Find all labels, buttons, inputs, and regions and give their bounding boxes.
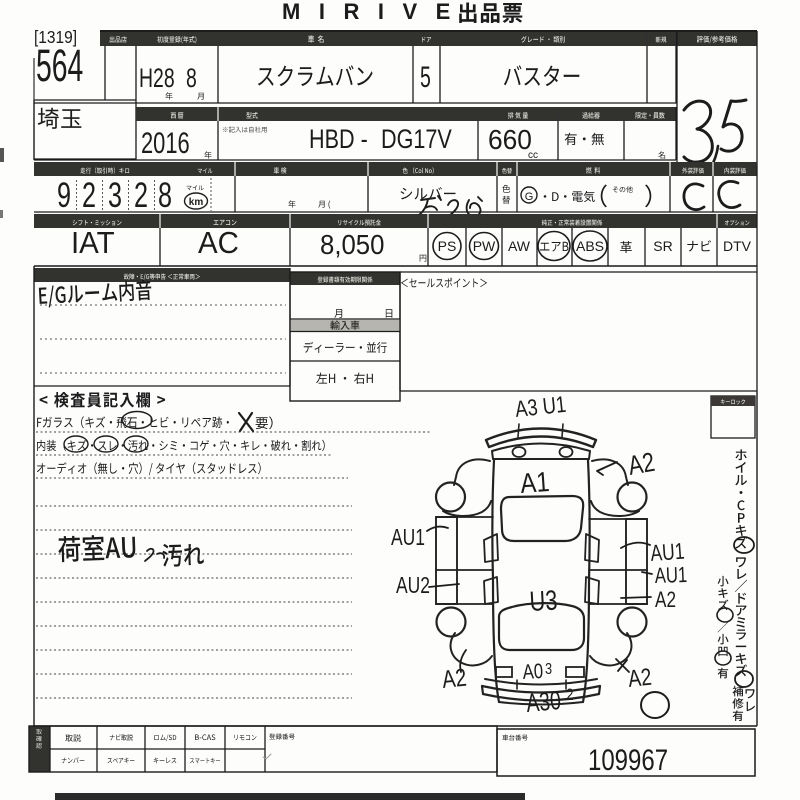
svg-text:5: 5 — [420, 61, 431, 94]
svg-text:2016: 2016 — [141, 126, 190, 160]
svg-text:ABS: ABS — [576, 238, 604, 254]
svg-text:G: G — [525, 191, 534, 203]
svg-text:A30: A30 — [525, 685, 562, 717]
svg-text:DTV: DTV — [723, 238, 752, 254]
svg-text:IAT: IAT — [71, 226, 115, 260]
svg-text:SR: SR — [653, 238, 672, 254]
svg-text:8: 8 — [186, 63, 197, 93]
svg-text:AU1: AU1 — [654, 563, 687, 589]
svg-text:A2: A2 — [655, 588, 676, 613]
svg-text:A2: A2 — [626, 448, 657, 482]
svg-text:9: 9 — [57, 176, 71, 215]
svg-text:A0: A0 — [522, 660, 544, 684]
svg-text:A3 U1: A3 U1 — [514, 392, 567, 423]
svg-text:PW: PW — [473, 238, 496, 254]
svg-text:3: 3 — [545, 661, 552, 679]
svg-text:HBD -: HBD - — [309, 125, 368, 155]
svg-text:8: 8 — [158, 176, 172, 215]
svg-text:3: 3 — [108, 176, 122, 215]
svg-text:AC: AC — [198, 226, 239, 260]
svg-text:U3: U3 — [529, 585, 558, 618]
svg-text:A2: A2 — [441, 663, 468, 693]
svg-text:AW: AW — [508, 238, 531, 254]
svg-text:109967: 109967 — [588, 742, 668, 776]
svg-text:DG17V: DG17V — [381, 125, 452, 155]
svg-text:2: 2 — [134, 176, 148, 215]
svg-text:8,050: 8,050 — [320, 229, 384, 260]
svg-text:660: 660 — [488, 123, 532, 155]
svg-text:564: 564 — [36, 40, 83, 90]
svg-text:km: km — [189, 197, 204, 208]
svg-text:H28: H28 — [139, 63, 175, 93]
svg-text:2: 2 — [82, 176, 96, 215]
svg-text:cc: cc — [528, 150, 538, 161]
svg-text:A1: A1 — [519, 465, 550, 499]
svg-text:AU2: AU2 — [396, 574, 430, 599]
svg-text:PS: PS — [438, 238, 457, 254]
svg-text:2: 2 — [566, 686, 574, 705]
svg-text:AU1: AU1 — [391, 526, 425, 551]
svg-text:MIRIVE: MIRIVE — [282, 0, 469, 24]
svg-text:A2: A2 — [627, 663, 653, 693]
